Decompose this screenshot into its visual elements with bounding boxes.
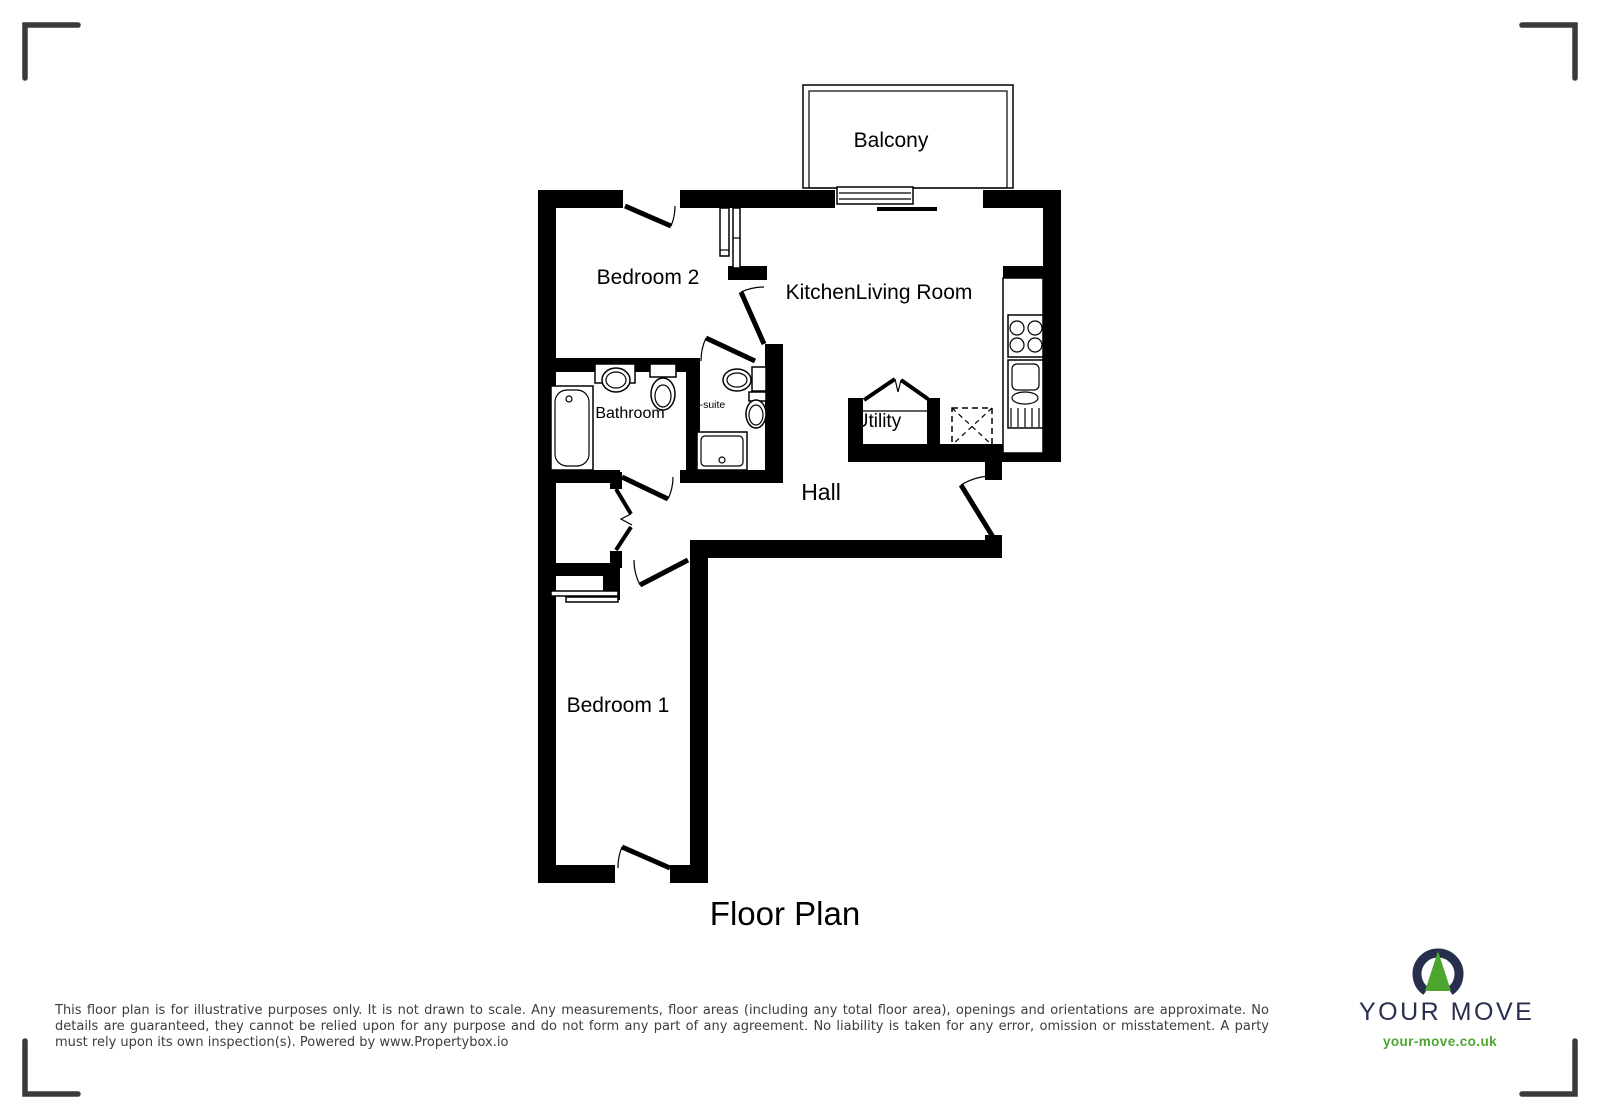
- room-label-kitchen-living: KitchenLiving Room: [786, 281, 973, 304]
- hob-icon: [1008, 315, 1043, 357]
- bedroom2-kitchen-door: [741, 287, 764, 344]
- ensuite-basin-icon: [723, 367, 766, 391]
- ensuite-door: [701, 338, 755, 361]
- room-label-bedroom1: Bedroom 1: [567, 694, 670, 717]
- entrance-door: [961, 476, 993, 537]
- ensuite-fixtures: [697, 367, 766, 470]
- shower-icon: [697, 432, 747, 470]
- hall-cupboard-doors: [616, 489, 632, 550]
- bedroom1-bottom-door: [618, 847, 670, 868]
- room-label-balcony: Balcony: [854, 129, 929, 152]
- windows: [551, 187, 937, 602]
- bedroom1-entry-door: [634, 560, 688, 585]
- bathroom-door: [622, 477, 673, 499]
- room-label-ensuite: En-suite: [687, 399, 726, 411]
- ensuite-toilet-icon: [746, 392, 766, 428]
- page: Balcony Bedroom 2 KitchenLiving Room Bat…: [0, 0, 1600, 1119]
- disclaimer-text: This floor plan is for illustrative purp…: [55, 1003, 1269, 1050]
- brand-name: YOUR MOVE: [1359, 998, 1521, 1027]
- balcony-sliding-door: [837, 187, 937, 209]
- appliance-space-icon: [952, 408, 992, 445]
- plan-title: Floor Plan: [710, 895, 860, 932]
- room-label-utility: Utility: [855, 411, 902, 432]
- brand-website: your-move.co.uk: [1359, 1034, 1521, 1049]
- bathroom-basin-icon: [595, 364, 635, 392]
- room-label-bathroom: Bathroom: [595, 405, 664, 422]
- bathroom-toilet-icon: [650, 364, 676, 410]
- doors: [616, 206, 993, 868]
- utility-bifold-doors: [864, 379, 928, 400]
- your-move-logo: YOUR MOVE your-move.co.uk: [1359, 938, 1521, 1049]
- your-move-logo-mark-icon: [1359, 938, 1521, 996]
- room-label-bedroom2: Bedroom 2: [597, 266, 700, 289]
- kitchen-sink-icon: [1008, 360, 1043, 428]
- bathtub-icon: [551, 386, 593, 470]
- bedroom2-door: [625, 206, 675, 226]
- room-label-hall: Hall: [801, 479, 841, 505]
